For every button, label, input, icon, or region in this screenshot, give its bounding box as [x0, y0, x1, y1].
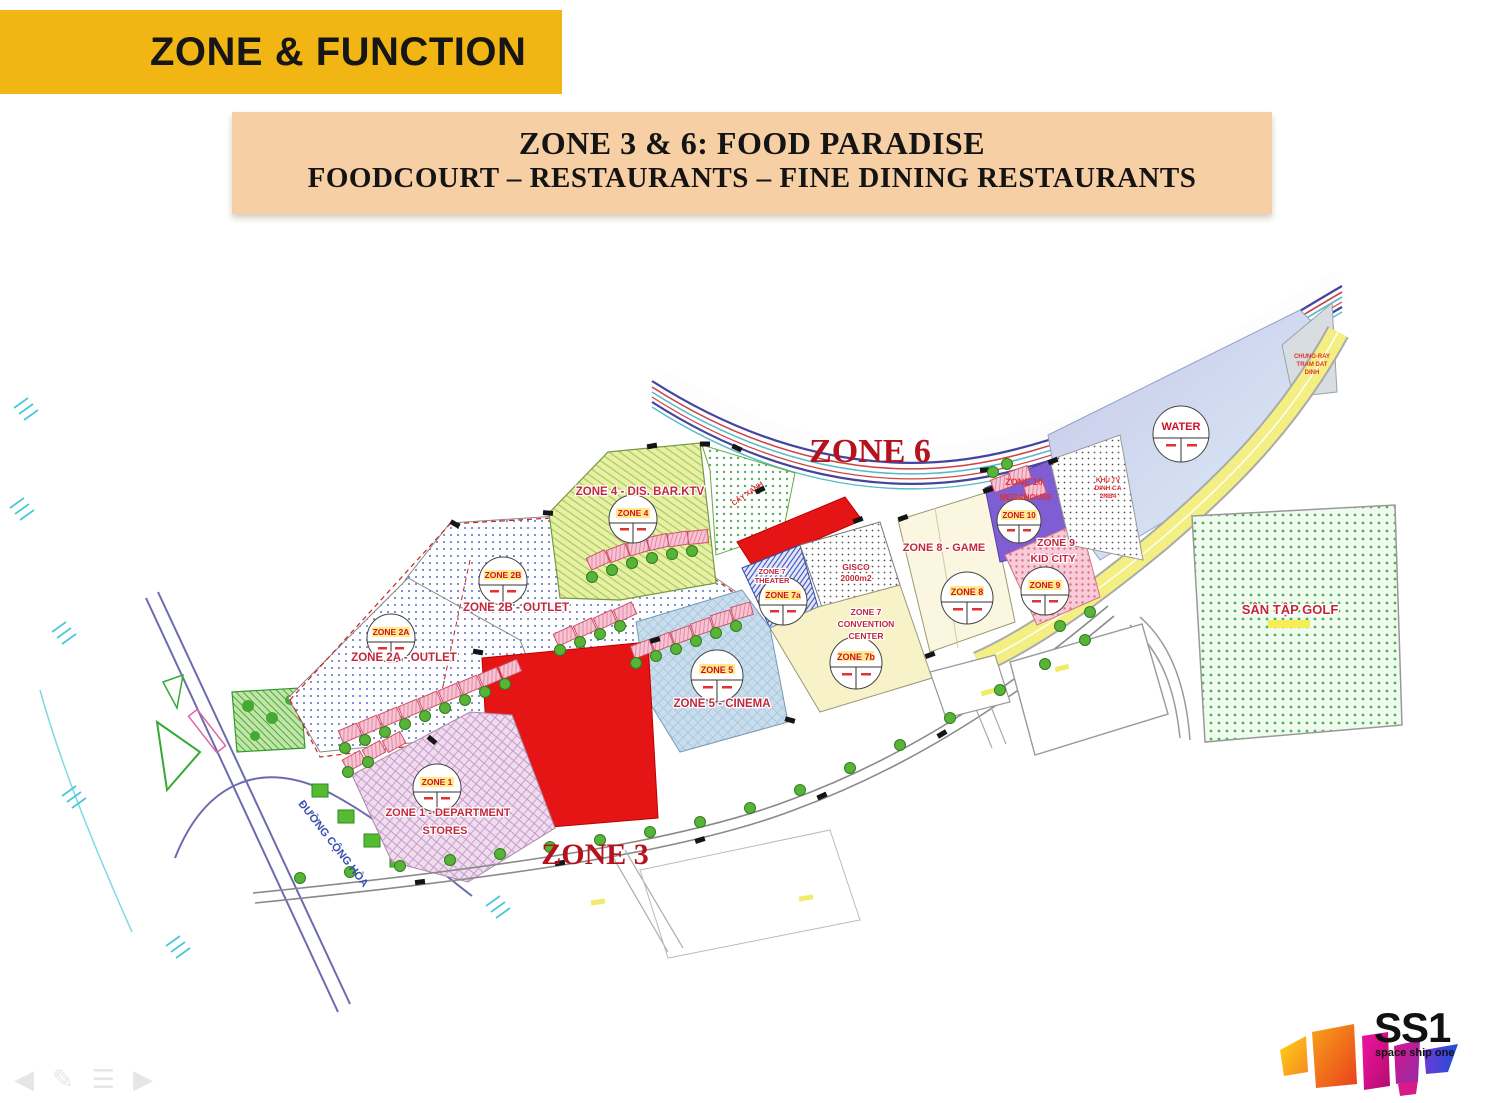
logo-shape: [1312, 1024, 1357, 1088]
resettlement-label-line2: DINH CA: [1094, 485, 1121, 492]
zone-9-label-line2: KID CITY: [1031, 553, 1076, 565]
stamp-label: WATER: [1162, 421, 1201, 433]
stamp-label: ZONE 8: [951, 587, 984, 597]
stamp-zone-7b: ZONE 7b: [830, 637, 882, 689]
corner-label-line2: TRAM DAT: [1297, 362, 1328, 368]
stamp-label: ZONE 9: [1030, 580, 1061, 590]
zone-1-label-line1: ZONE 1 - DEPARTMENT: [385, 807, 510, 819]
stamp-water: WATER: [1153, 406, 1209, 462]
stamp-zone-2b: ZONE 2B: [479, 557, 527, 605]
stamp-zone-10: ZONE 10: [997, 499, 1041, 543]
zone-4-label: ZONE 4 - DIS. BAR.KTV: [576, 486, 705, 498]
zone-3-title: ZONE 3: [541, 838, 649, 871]
gisco-label-line1: GISCO: [842, 562, 870, 572]
zone-9-label-line1: ZONE 9: [1037, 537, 1075, 549]
golf-area-note: [1268, 620, 1310, 628]
zone-7b-label-line3: CENTER: [849, 631, 884, 641]
stamp-zone-9: ZONE 9: [1021, 567, 1069, 615]
stamp-label: ZONE 2A: [373, 627, 410, 637]
zone-1-label-line2: STORES: [422, 825, 467, 837]
slideshow-controls: ◀ ✎ ☰ ▶: [14, 1064, 153, 1094]
zone-7a-label-line1: ZONE 7: [758, 567, 785, 576]
zone-5-label: ZONE 5 - CINEMA: [673, 698, 770, 710]
stamp-zone-1: ZONE 1: [413, 764, 461, 812]
slideshow-prev-button[interactable]: ◀: [14, 1064, 34, 1094]
pen-tool-button[interactable]: ✎: [52, 1064, 74, 1094]
ss1-logo: SS1 space ship one: [1262, 998, 1477, 1098]
site-plan-map: ZONE 2B ZONE 2A ZONE 1 ZONE 4: [0, 0, 1500, 1100]
corner-label-line1: CHUNG-RAY: [1294, 354, 1330, 360]
stamp-zone-8: ZONE 8: [941, 572, 993, 624]
zone-7b-label-line2: CONVENTION: [838, 619, 895, 629]
slide-menu-button[interactable]: ☰: [92, 1064, 115, 1094]
stamp-label: ZONE 1: [422, 777, 453, 787]
zone-6-title: ZONE 6: [809, 433, 931, 470]
gisco-label-line2: 2000m2: [840, 573, 871, 583]
logo-tagline: space ship one: [1375, 1047, 1454, 1059]
zone-7b-label-line1: ZONE 7: [851, 607, 882, 617]
stamp-label: ZONE 10: [1002, 511, 1036, 520]
stamp-label: ZONE 7a: [765, 590, 801, 600]
stamp-label: ZONE 2B: [485, 570, 522, 580]
slideshow-next-button[interactable]: ▶: [133, 1064, 153, 1094]
zone-8-label: ZONE 8 - GAME: [903, 542, 986, 554]
stamp-zone-5: ZONE 5: [691, 650, 743, 702]
resettlement-label-line3: 2NB4: [1100, 493, 1117, 500]
logo-text: SS1: [1374, 1004, 1451, 1051]
zone-10-label-line2: MEGAHOUSE: [1000, 493, 1053, 502]
stamp-label: ZONE 7b: [837, 652, 876, 662]
resettlement-label-line1: KHU TV: [1096, 477, 1121, 484]
stamp-zone-4: ZONE 4: [609, 495, 657, 543]
stamp-label: ZONE 4: [618, 508, 649, 518]
zone-2a-label: ZONE 2A - OUTLET: [351, 652, 457, 664]
logo-shape: [1280, 1036, 1308, 1076]
golf-label: SÂN TẬP GOLF: [1242, 602, 1339, 617]
zone-2b-label: ZONE 2B - OUTLET: [463, 602, 569, 614]
corner-label-line3: DINH: [1305, 370, 1320, 376]
zone-10-label-line1: ZONE 10: [1005, 477, 1043, 487]
stamp-label: ZONE 5: [701, 665, 734, 675]
zone-7a-label-line2: THEATER: [755, 576, 790, 585]
